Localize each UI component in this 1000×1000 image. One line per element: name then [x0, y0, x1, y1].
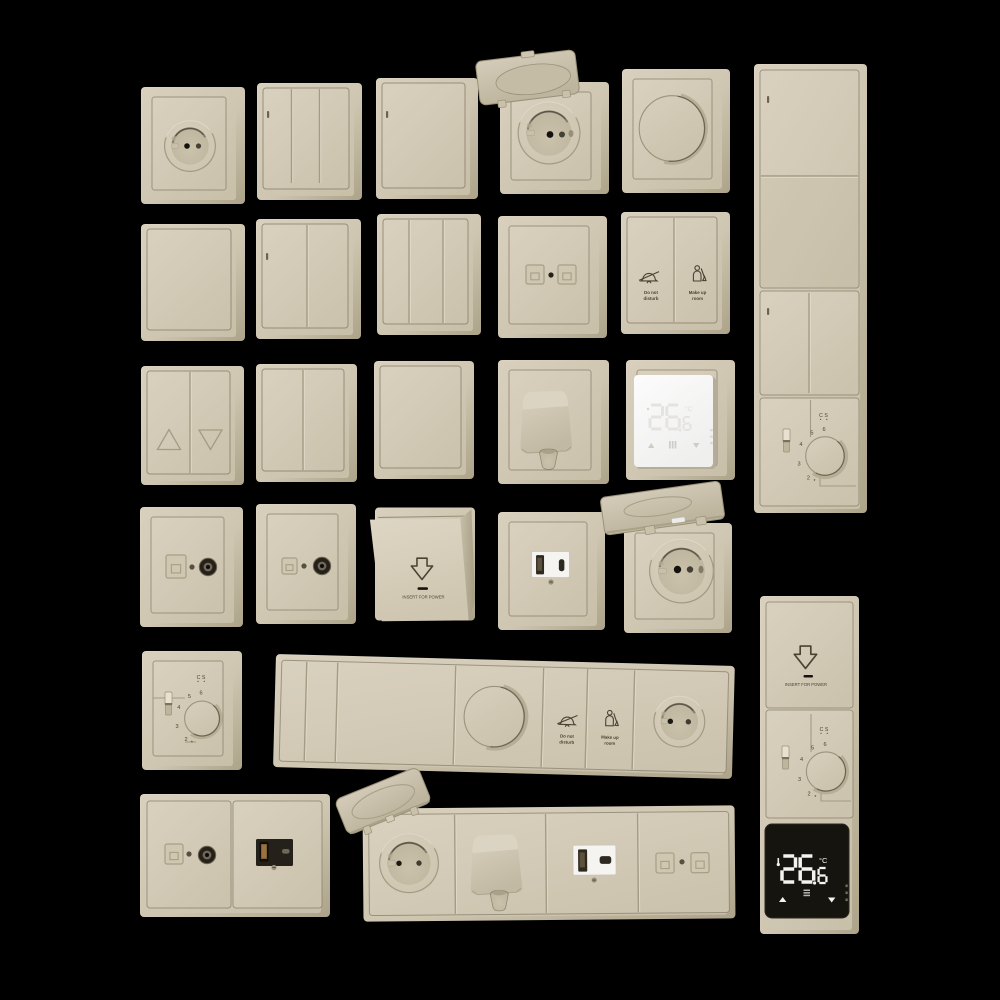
svg-text:5: 5 — [810, 431, 813, 437]
svg-text:C S: C S — [197, 675, 206, 681]
svg-text:4: 4 — [799, 442, 802, 448]
svg-text:5: 5 — [188, 694, 191, 700]
svg-text:INSERT FOR POWER: INSERT FOR POWER — [785, 682, 827, 687]
svg-text:Do not: Do not — [644, 290, 658, 295]
svg-text:2: 2 — [807, 475, 810, 481]
svg-text:4: 4 — [177, 705, 180, 711]
svg-text:Do not: Do not — [560, 733, 575, 738]
svg-text:3: 3 — [175, 724, 178, 730]
svg-text:Make up: Make up — [601, 735, 619, 740]
svg-text:3: 3 — [797, 462, 800, 468]
svg-text:disturb: disturb — [644, 296, 659, 301]
svg-text:2: 2 — [808, 791, 811, 797]
svg-text:6: 6 — [823, 742, 826, 748]
svg-text:4: 4 — [800, 757, 803, 763]
svg-text:room: room — [604, 741, 615, 746]
svg-text:°C: °C — [819, 856, 828, 865]
svg-text:room: room — [692, 296, 703, 301]
svg-text:2: 2 — [184, 737, 187, 743]
svg-text:6: 6 — [823, 427, 826, 433]
svg-text:INSERT FOR POWER: INSERT FOR POWER — [402, 595, 444, 600]
svg-text:disturb: disturb — [559, 739, 574, 744]
svg-text:Make up: Make up — [689, 290, 707, 295]
svg-text:5: 5 — [811, 746, 814, 752]
svg-text:6: 6 — [200, 691, 203, 697]
svg-text:C S: C S — [819, 413, 828, 419]
svg-text:°C: °C — [685, 405, 693, 413]
svg-text:C S: C S — [820, 727, 829, 733]
svg-text:3: 3 — [798, 777, 801, 783]
